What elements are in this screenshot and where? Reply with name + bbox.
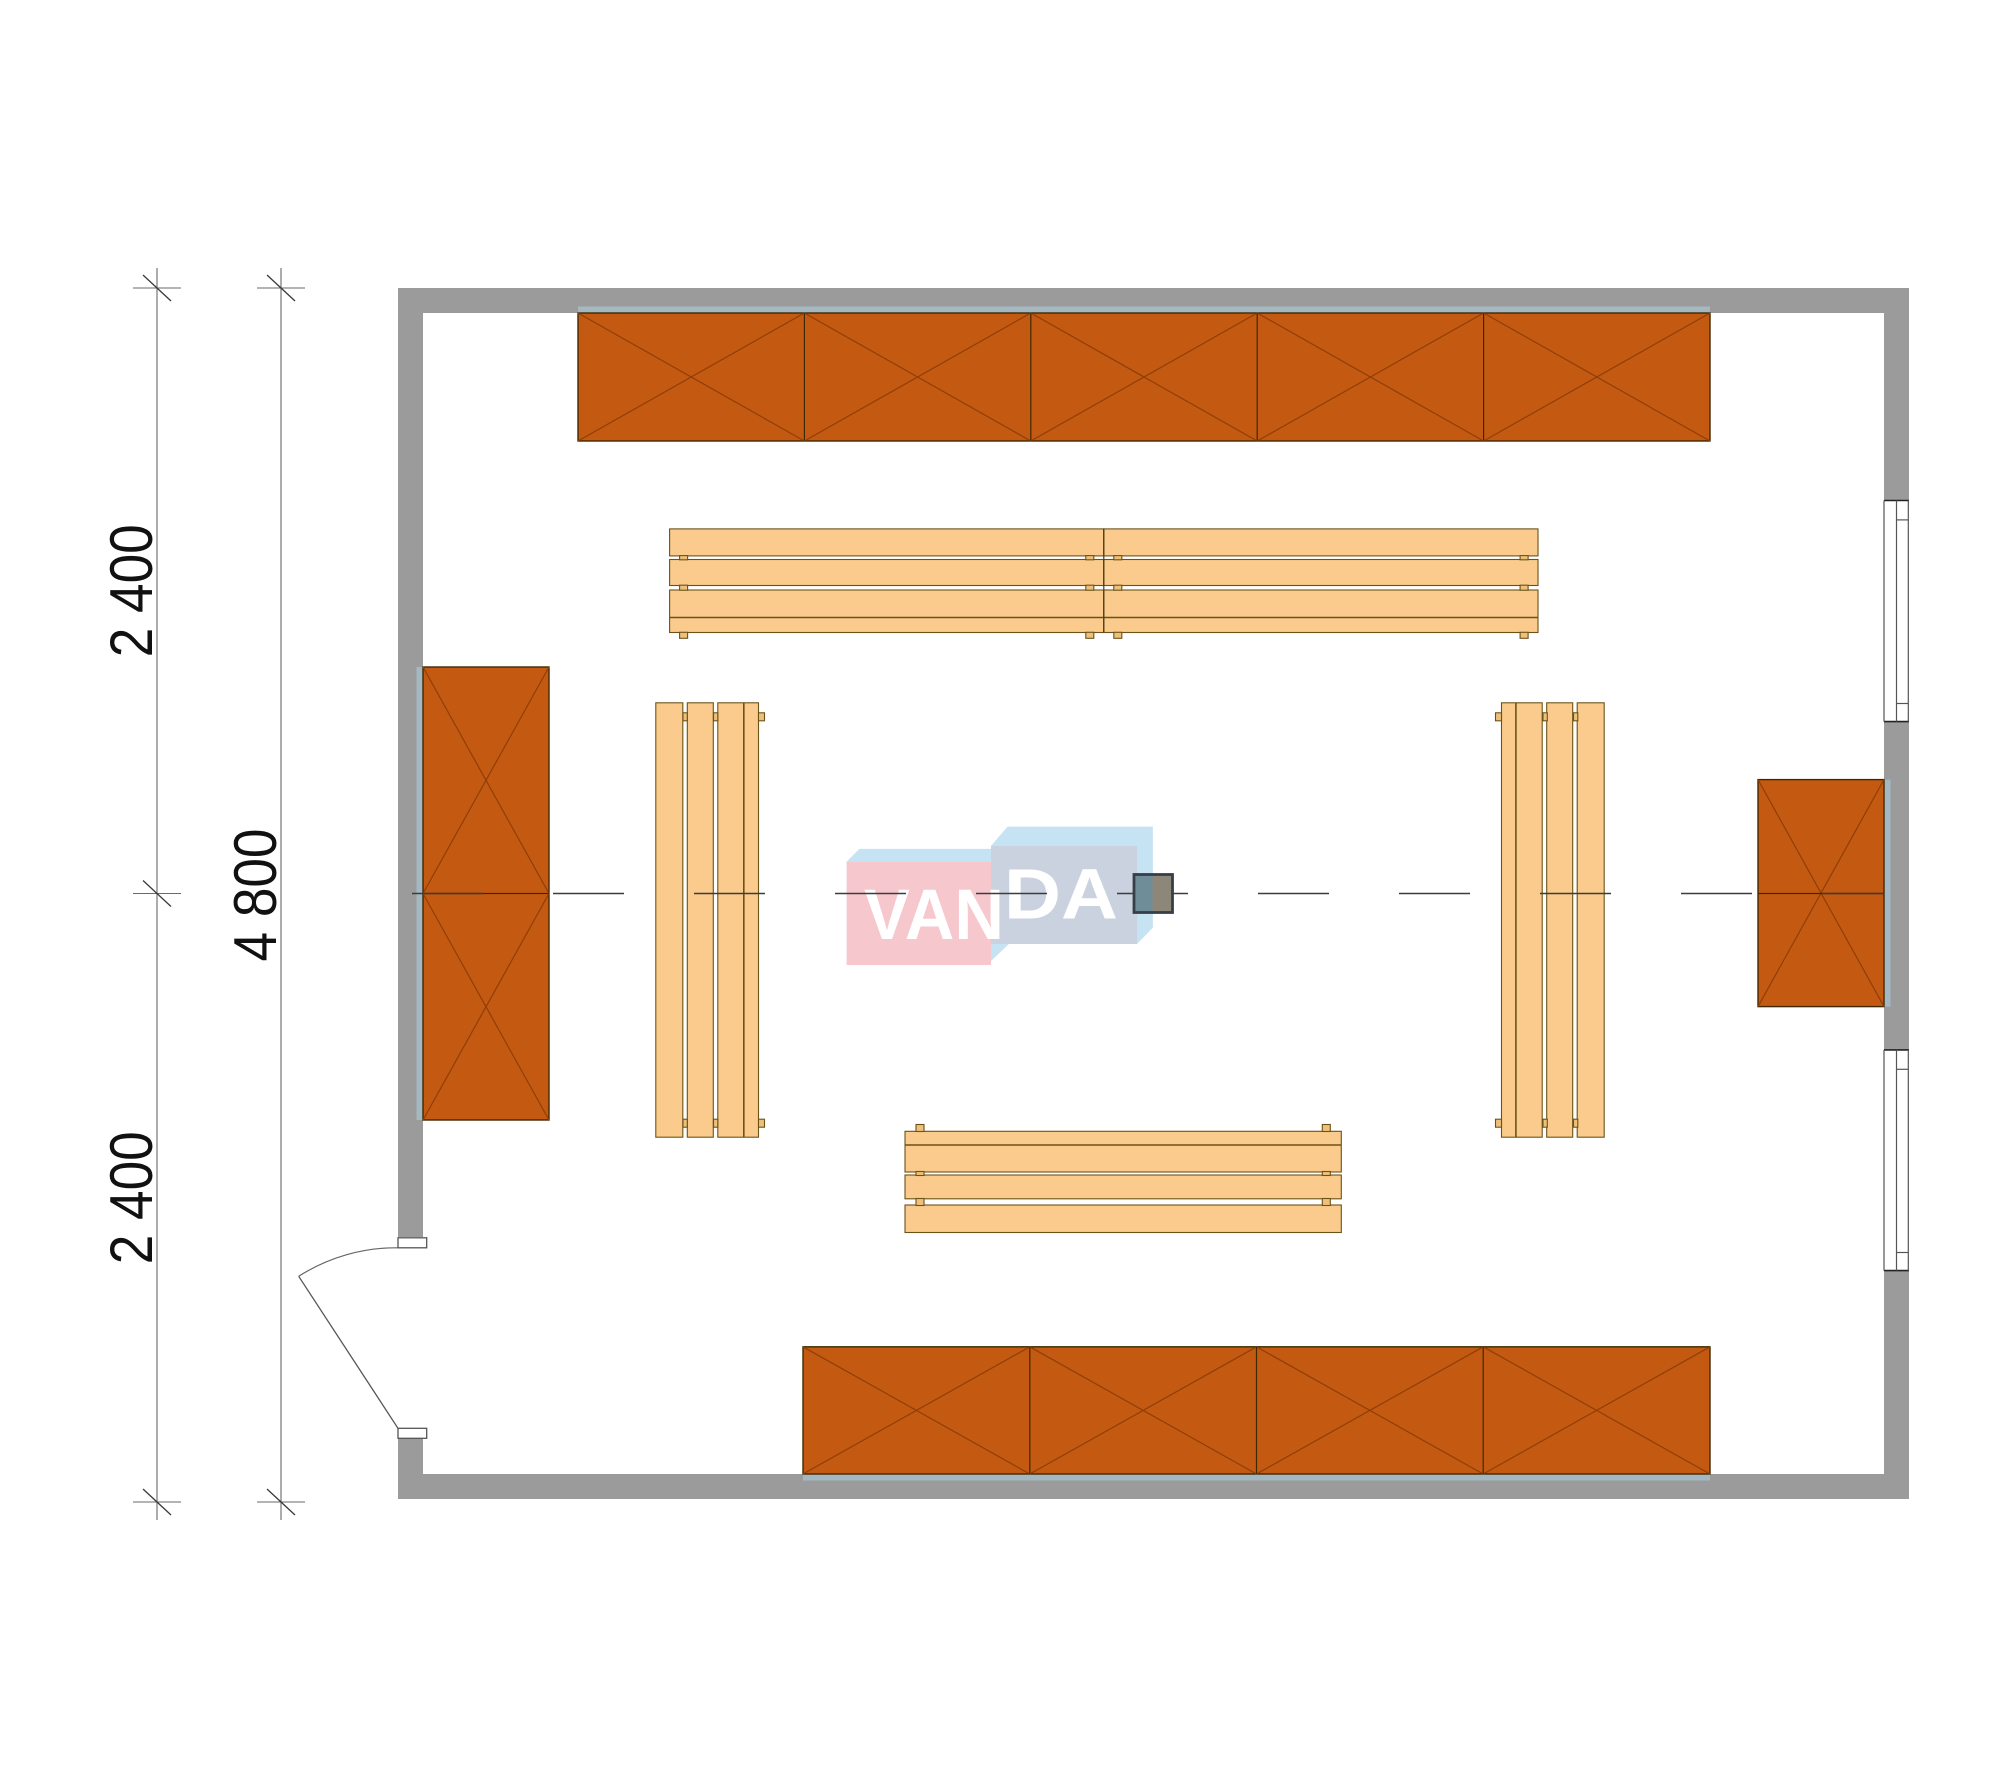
svg-text:2 400: 2 400	[98, 1131, 165, 1264]
svg-text:2 400: 2 400	[98, 524, 165, 657]
svg-text:VAN: VAN	[864, 876, 1004, 955]
svg-text:4 800: 4 800	[222, 829, 289, 962]
svg-text:DA: DA	[1004, 856, 1118, 935]
